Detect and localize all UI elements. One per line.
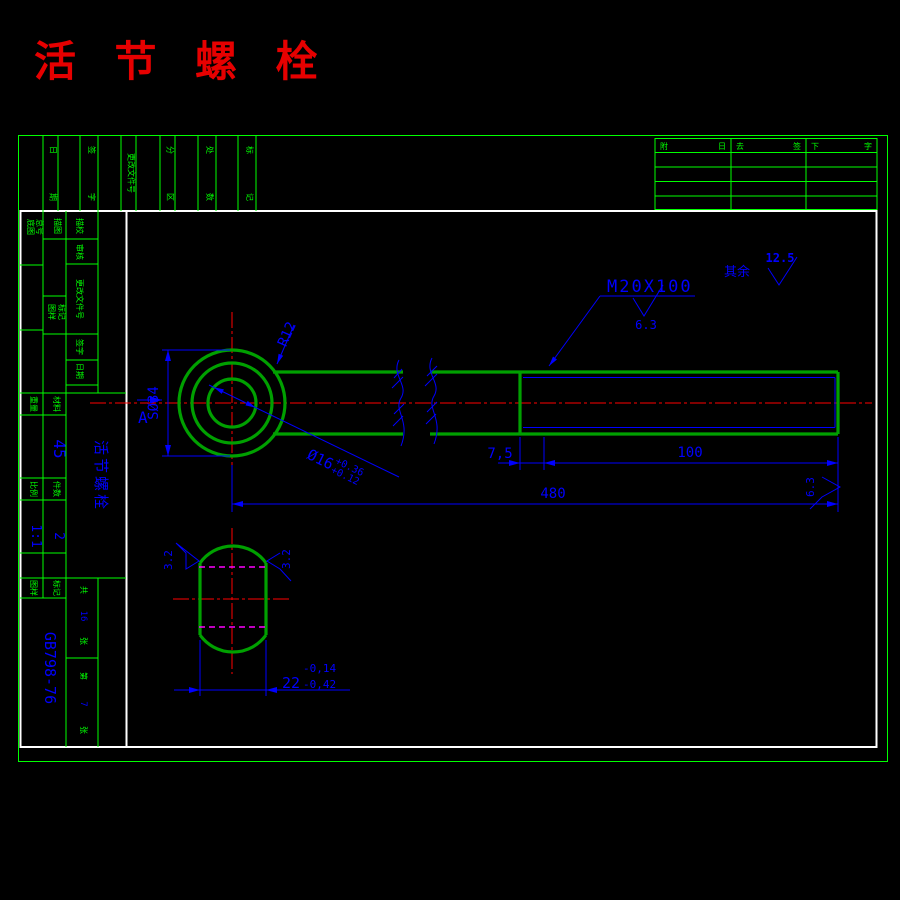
sig-header: 签 [793,141,801,151]
sig-header: 去 [736,141,744,151]
dimensions: SØ34 A R12 Ø16 +0.36 [137,277,838,696]
rev-col-label: 字 [87,193,97,201]
hidden-lines [199,567,267,627]
tb-label-tuyang: 图样 [47,304,57,320]
revision-strip: 日 期 签 字 更改文件号 分 区 处 数 标 记 [43,136,256,212]
dim-width-22: 22 -0,14 -0,42 [174,640,350,696]
dim-100: 100 [544,437,838,512]
svg-text:R12: R12 [275,320,300,350]
svg-text:SØ34: SØ34 [146,386,162,420]
rev-col-label: 数 [205,193,215,201]
roughness-symbols: 6.3 其余 12.5 6.3 3.2 3.2 [162,251,840,581]
rev-col-label: 日 [49,146,58,154]
svg-text:-0,14: -0,14 [303,662,336,675]
tb-label-biaoji: 标记 [57,304,67,320]
tb-part-name: 活节螺栓 [92,440,110,512]
sig-header: 日 [718,142,726,151]
svg-text:M20X100: M20X100 [607,277,693,297]
title-block: 底图 总号 描图 描校 审核 更改文件号 图样 标记 签字 日期 重量 材料 比… [20,211,126,747]
tb-label-jianshu: 件数 [52,481,62,497]
roughness-flat-right: 3.2 [267,549,293,581]
tb-sheet-num: 7 [78,701,88,706]
rev-col-label: 分 [166,146,175,154]
rev-col-label: 签 [87,146,97,154]
tb-label-qianzi: 签字 [75,339,85,355]
dim-7-5: 7,5 [487,437,564,470]
svg-text:7,5: 7,5 [487,446,512,462]
sig-header: 下 [811,142,819,151]
svg-text:3.2: 3.2 [162,550,175,570]
rev-col-label: 更改文件号 [127,153,137,193]
svg-text:其余: 其余 [724,264,750,280]
tb-sheet-di: 第 [79,672,89,680]
tb-sheet-zhang2: 张 [79,726,88,734]
rev-col-label: 期 [49,193,58,201]
tb-label-miaojiao: 描校 [75,218,85,234]
tb-sheet-total: 16 [78,611,88,622]
svg-text:A: A [138,408,148,427]
tb-label-bili: 比例 [29,481,39,497]
cad-canvas: 活 节 螺 栓 日 期 签 字 更改 [0,0,900,900]
svg-text:100: 100 [677,445,702,461]
tb-standard-number: GB798-76 [41,632,59,704]
tb-label-ditu: 底图 [26,219,36,235]
roughness-flat-left: 3.2 [162,543,199,570]
dim-thread-spec: M20X100 [549,277,695,366]
tb-scale-value: 1:1 [28,524,43,547]
tb-label-cailiao: 材料 [52,396,62,412]
tb-qty-value: 2 [51,532,66,540]
rev-col-label: 标 [245,146,255,154]
dim-fillet-radius: R12 [275,320,300,364]
inner-frame [21,211,877,747]
tb-label-zhongliang: 重量 [29,396,39,412]
tb-label-riqi: 日期 [75,363,84,379]
signature-table: 附 日 去 签 下 字 [655,139,877,210]
roughness-rest: 其余 12.5 [724,251,797,285]
sig-header: 字 [864,141,872,151]
tb-label-shenhe: 审核 [75,244,85,260]
outer-frame [19,136,888,762]
cad-drawing-sheet: 日 期 签 字 更改文件号 分 区 处 数 标 记 附 日 去 签 下 字 [0,0,900,900]
rev-col-label: 记 [245,193,254,201]
tb-sheet-gong: 共 [79,586,88,594]
tb-sheet-zhang1: 张 [79,637,88,645]
svg-text:6.3: 6.3 [804,477,817,497]
centerlines [90,312,872,674]
svg-text:6.3: 6.3 [635,318,657,332]
tb-label-miaotu: 描图 [53,218,63,234]
rev-col-label: 处 [205,146,215,154]
tb-label-b2: 标记 [52,580,62,596]
tb-label-genggai: 更改文件号 [75,279,85,319]
svg-text:12.5: 12.5 [766,251,795,265]
svg-text:-0,42: -0,42 [303,678,336,691]
rev-col-label: 区 [166,193,175,201]
svg-text:3.2: 3.2 [280,549,293,569]
tb-label-b1: 图样 [29,580,39,596]
dim-hole-diameter: Ø16 +0.36 +0.12 [209,385,399,488]
svg-text:22: 22 [282,674,300,692]
sig-header: 附 [660,141,668,151]
tb-material-value: 45 [50,439,69,458]
tb-label-zonghao: 总号 [35,219,45,235]
svg-text:480: 480 [540,486,565,502]
dim-480: 480 [232,465,838,512]
